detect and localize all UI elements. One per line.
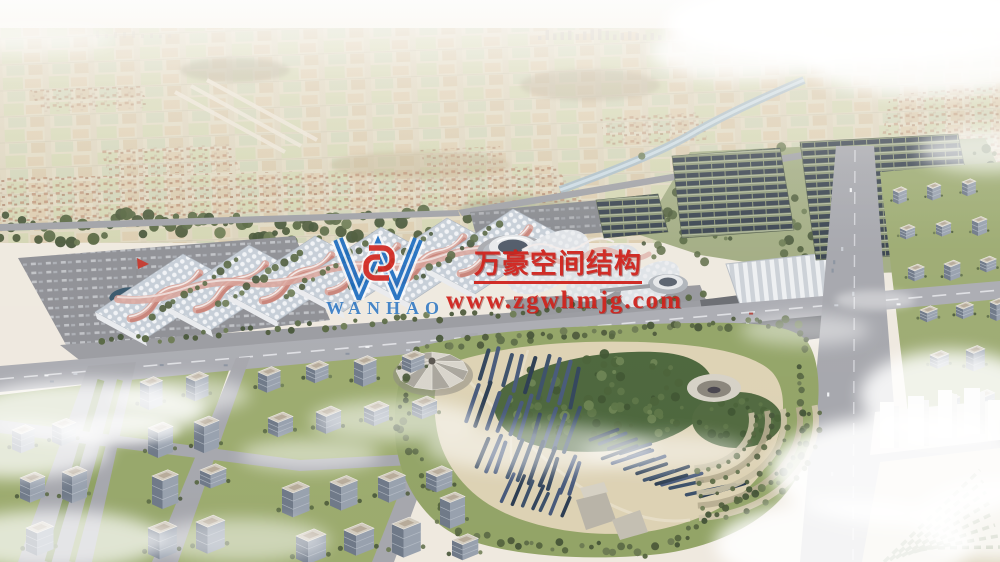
aerial-rendering: WANHAO 万豪空间结构 www.zgwhmjg.com <box>0 0 1000 562</box>
watermark: WANHAO 万豪空间结构 www.zgwhmjg.com <box>0 0 1000 562</box>
watermark-company-name: 万豪空间结构 <box>474 251 642 284</box>
wanhao-logo: WANHAO <box>326 234 436 319</box>
wanhao-logo-mark <box>326 234 436 300</box>
wanhao-logo-text: WANHAO <box>326 298 436 319</box>
watermark-website: www.zgwhmjg.com <box>446 287 683 315</box>
